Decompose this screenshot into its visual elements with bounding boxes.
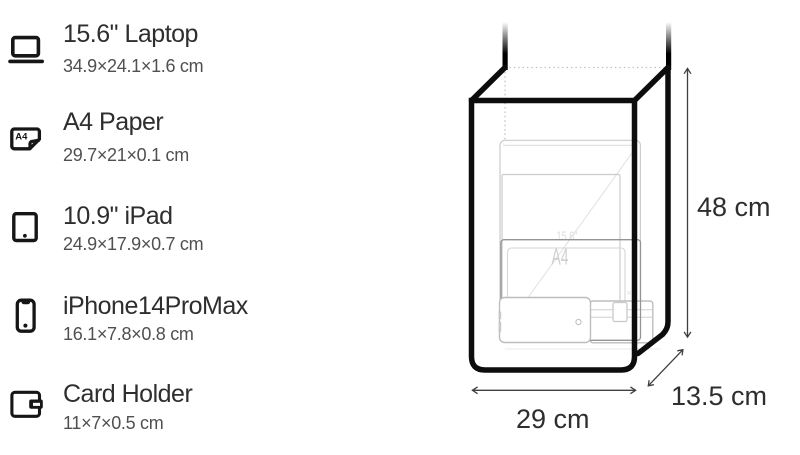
svg-text:A4: A4 xyxy=(552,243,569,269)
svg-text:×: × xyxy=(627,288,632,298)
svg-text:15.6": 15.6" xyxy=(557,229,578,244)
